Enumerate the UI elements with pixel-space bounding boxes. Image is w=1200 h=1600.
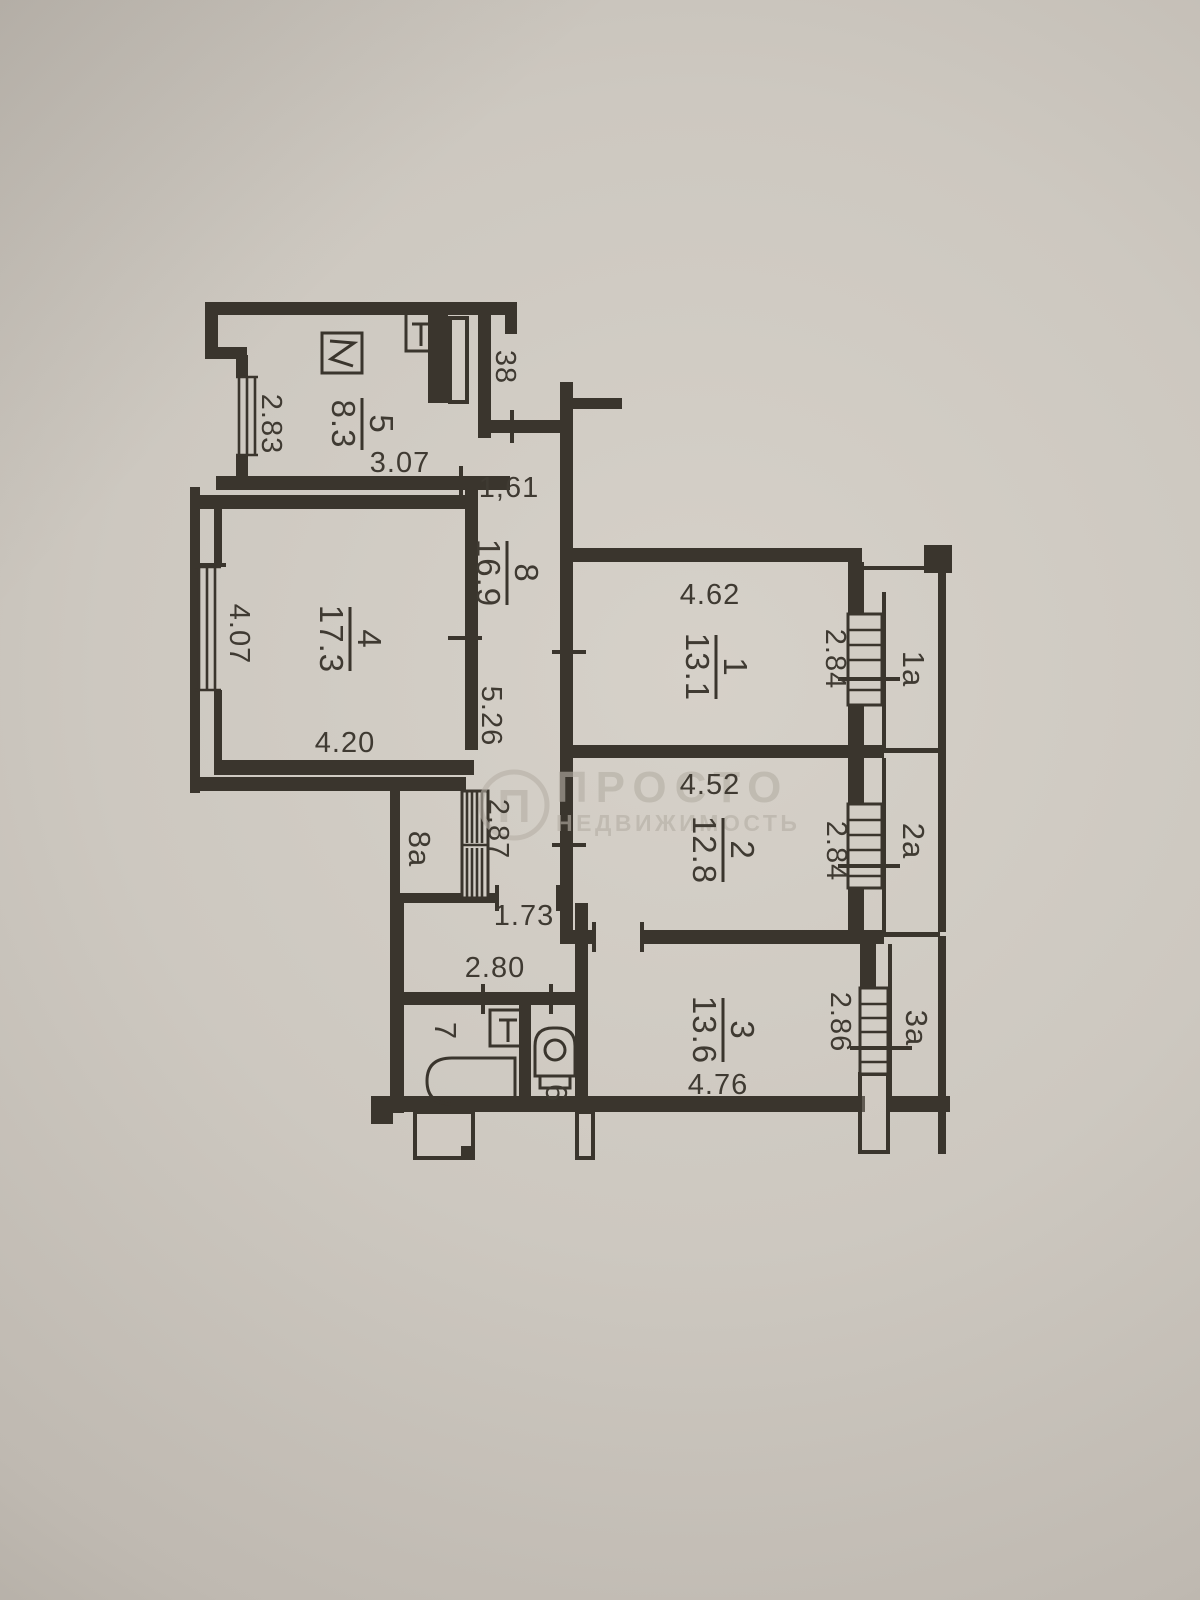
floor-plan-drawing: П ПРОСТО НЕДВИЖИМОСТЬ 5 8.3 8 16.9 4 17.… [0,0,1200,1600]
watermark-title: ПРОСТО [556,763,789,812]
watermark-subtitle: НЕДВИЖИМОСТЬ [556,810,800,836]
dim-corridor-length: 5.26 [475,686,507,746]
window-room1-balcony [848,614,882,705]
room5-area: 8.3 [325,400,362,449]
room5-label: 5 8.3 [325,398,400,450]
room3-label: 3 13.6 [686,996,761,1064]
room2-area: 12.8 [686,816,723,884]
toilet-icon [535,1028,575,1088]
window-room3-balcony [860,988,888,1074]
dim-lobby-width1: 1.73 [494,900,554,932]
bath7-number: 7 [428,1022,463,1040]
balcony1a-number: 1а [896,651,931,687]
balcony3-wall-footing [860,1074,888,1152]
room2-number: 2 [724,840,761,859]
dim-room4-horizontal: 4.20 [315,727,375,759]
dim-room3-vertical: 2.86 [824,992,856,1052]
balcony2a-number: 2а [896,823,931,859]
room5-number: 5 [363,414,400,433]
room4-area: 17.3 [313,605,350,673]
room4-label: 4 17.3 [313,605,388,673]
scanned-floor-plan-photo: П ПРОСТО НЕДВИЖИМОСТЬ 5 8.3 8 16.9 4 17.… [0,0,1200,1600]
window-kitchen [236,377,258,455]
dim-kitchen-horizontal: 3.07 [370,447,430,479]
dim-kitchen-vertical: 2.83 [255,394,287,454]
stove-icon [322,333,362,373]
corridor8-area: 16.9 [470,539,507,607]
room3-area: 13.6 [686,996,723,1064]
corridor8-label: 8 16.9 [470,539,545,607]
dim-room2-vertical: 2.84 [820,821,852,881]
dim-room1-vertical: 2.84 [819,629,851,689]
dim-lobby-width2: 2.80 [465,952,525,984]
window-room2-balcony [848,804,882,888]
vent-shaft-icon [450,318,467,402]
watermark: П ПРОСТО НЕДВИЖИМОСТЬ [481,763,800,838]
dim-closet-vertical: 2.87 [482,799,514,859]
dim-room2-horizontal: 4.52 [680,769,740,801]
dim-room4-vertical: 4.07 [223,604,255,664]
room1-number: 1 [717,657,754,676]
room4-number: 4 [351,629,388,648]
apartment-number: 38 [489,350,521,384]
room1-area: 13.1 [679,633,716,701]
wc6-number: 6 [539,1084,574,1102]
corridor8-number: 8 [508,563,545,582]
dim-hall-width: 1,61 [479,472,539,504]
dim-room1-horizontal: 4.62 [680,579,740,611]
foundation-stub-right [577,1112,593,1158]
room1-label: 1 13.1 [679,633,754,701]
balcony3a-number: 3а [899,1010,934,1046]
window-room4 [195,567,221,690]
dim-room3-horizontal: 4.76 [688,1069,748,1101]
storage8a-number: 8а [402,831,437,867]
room3-number: 3 [724,1020,761,1039]
